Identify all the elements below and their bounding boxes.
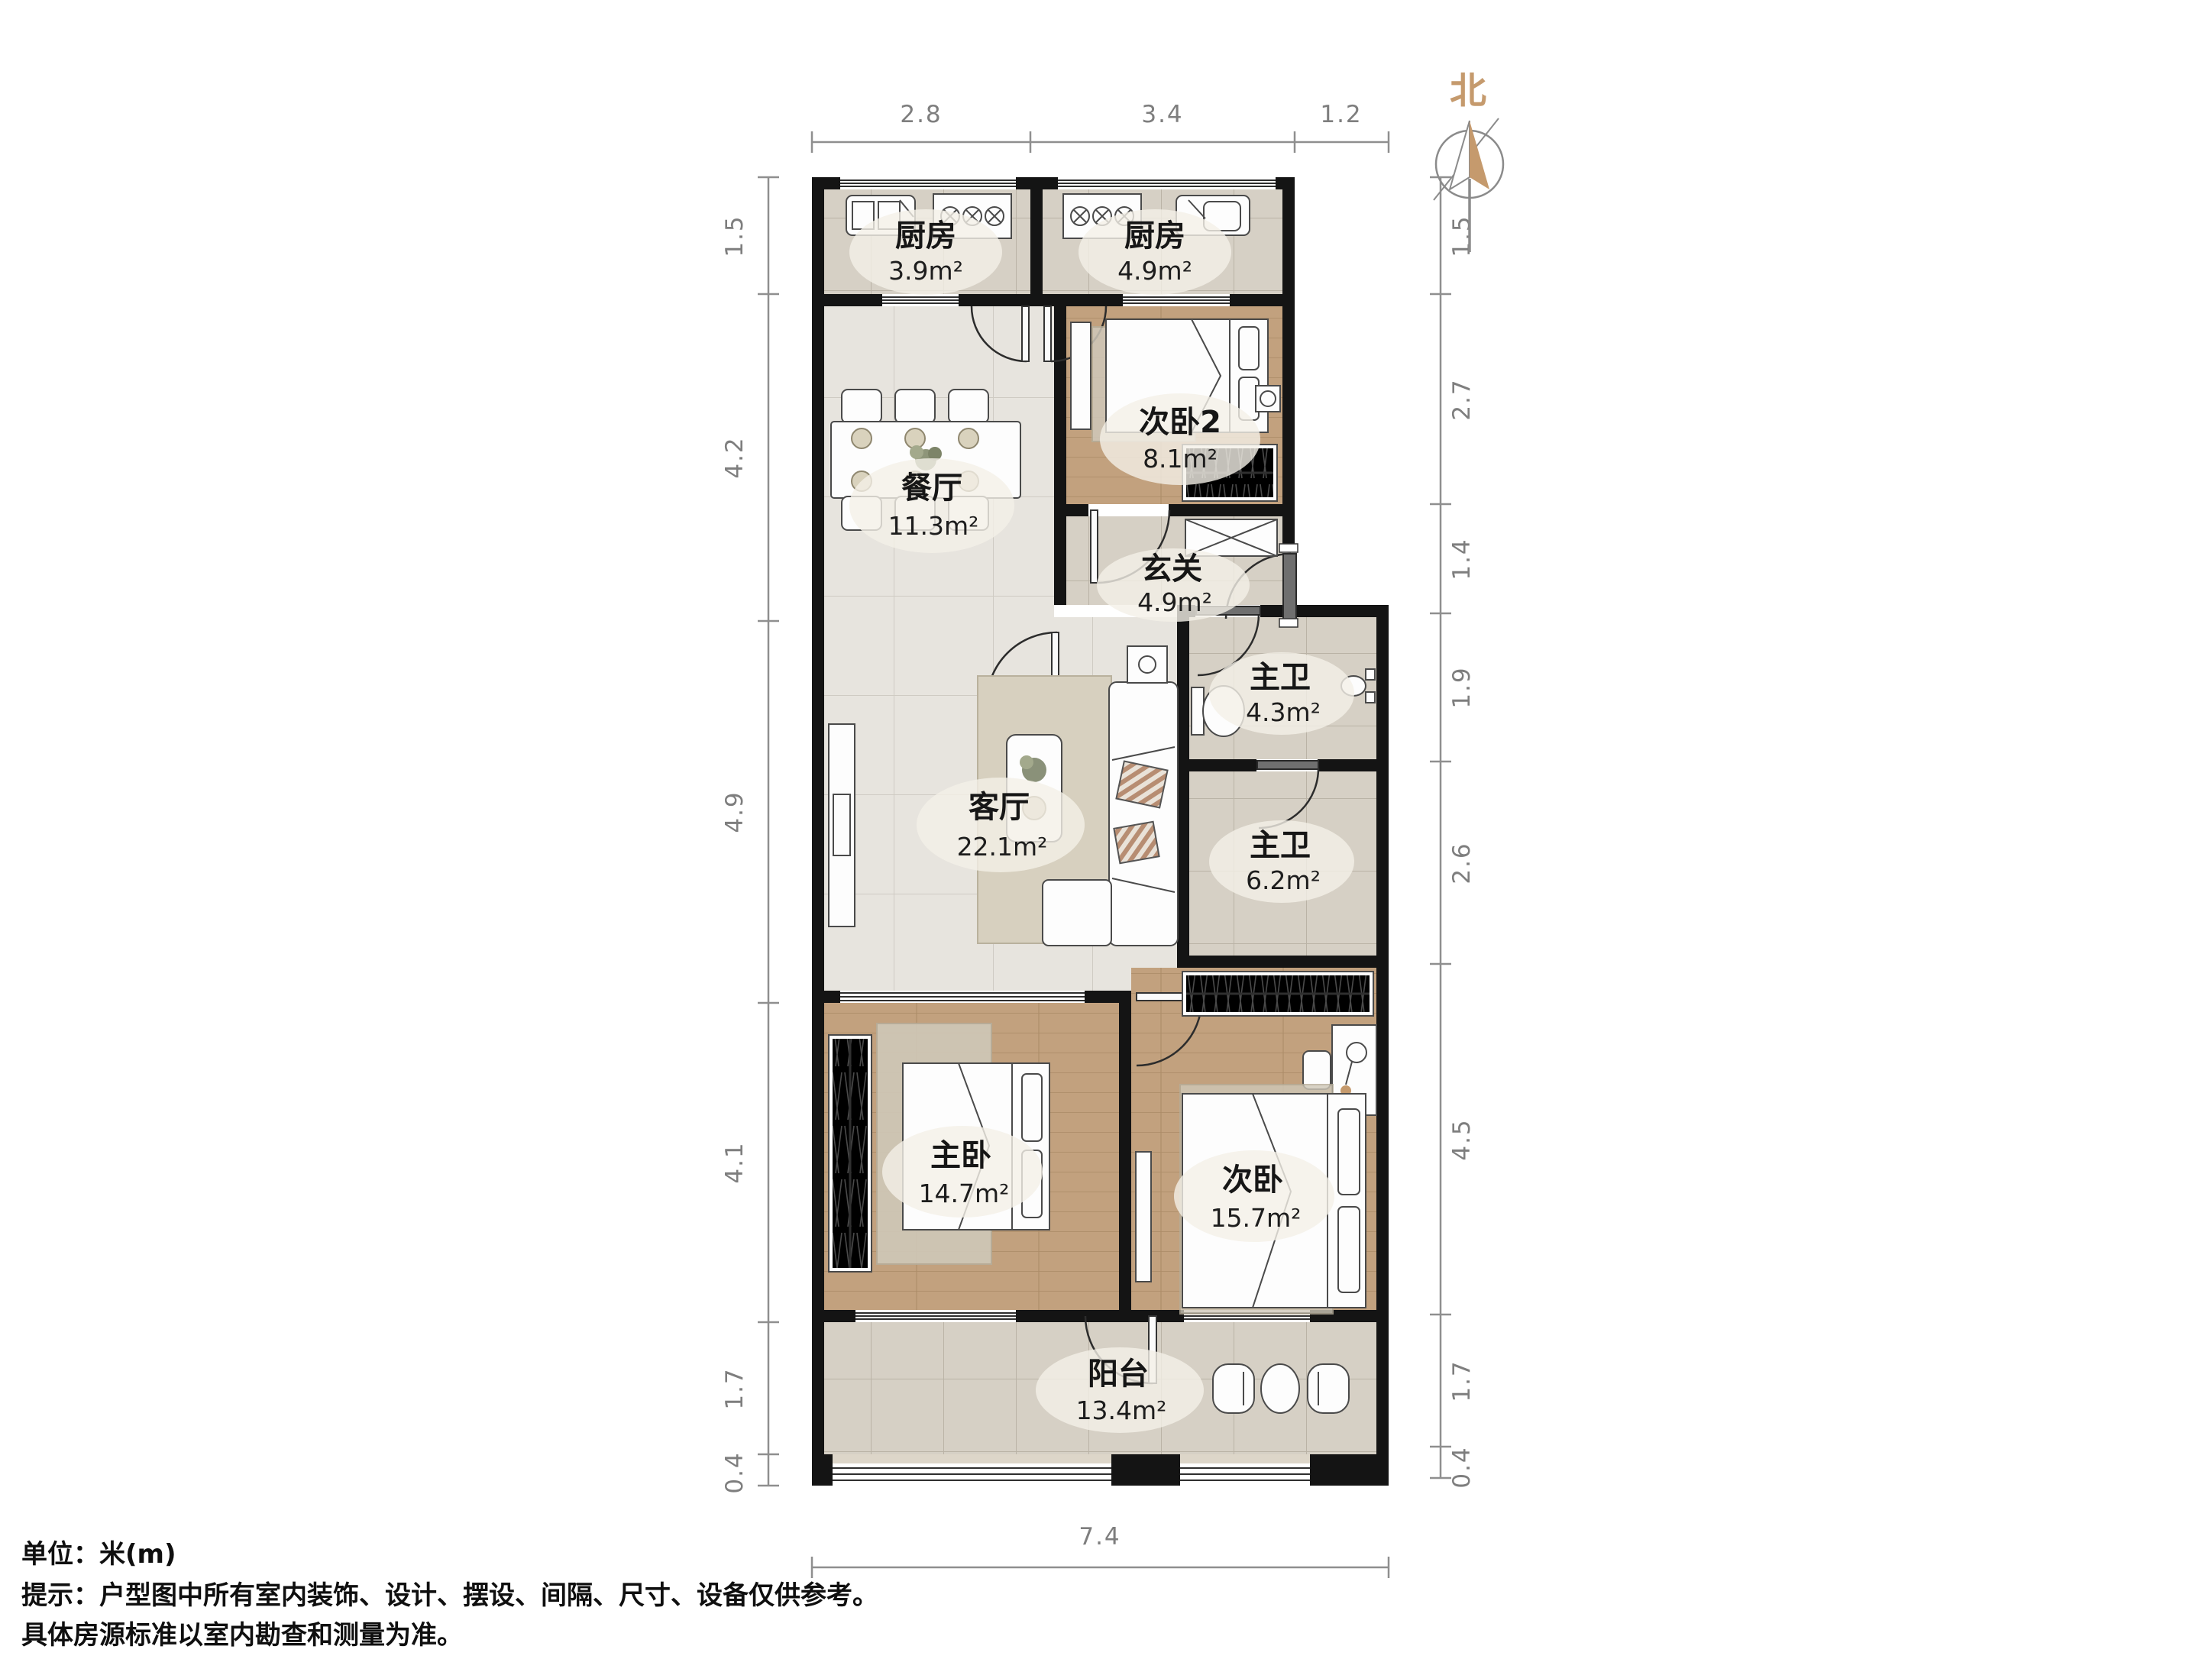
room-label-bath-1: 主卫 [1250, 660, 1311, 695]
dim-right-7: 1.7 [1448, 1360, 1476, 1402]
kitchen-1-window [840, 177, 1016, 189]
room-area-bath-2: 6.2m² [1246, 865, 1321, 895]
north-label: 北 [1450, 70, 1486, 112]
dim-top-2: 3.4 [1141, 101, 1183, 128]
tv-cabinet [829, 724, 855, 927]
master-bedroom-sliding-window [840, 991, 1085, 1003]
bedroom-2b-fan-unit [1256, 386, 1280, 412]
room-label-bedroom-2b: 次卧2 [1139, 405, 1221, 440]
unit-note: 单位：米(m) [21, 1539, 176, 1570]
room-area-kitchen-1: 3.9m² [888, 256, 963, 286]
dim-left-5: 1.7 [721, 1367, 749, 1409]
room-label-kitchen-1: 厨房 [895, 218, 956, 254]
dim-right-1: 1.5 [1448, 215, 1476, 257]
dim-right-6: 4.5 [1448, 1118, 1476, 1160]
second-tv-panel [1136, 1152, 1151, 1282]
dim-right-5: 2.6 [1448, 842, 1476, 884]
disclaimer-line-2: 具体房源标准以室内勘查和测量为准。 [21, 1620, 463, 1651]
dim-left-1: 1.5 [721, 215, 749, 257]
master-balcony-window [855, 1310, 1016, 1322]
room-label-entry: 玄关 [1141, 551, 1202, 587]
dim-right-3: 1.4 [1448, 538, 1476, 580]
side-table-flower [1127, 646, 1167, 683]
room-label-dining: 餐厅 [901, 471, 962, 506]
room-area-bedroom-2b: 8.1m² [1143, 444, 1218, 474]
footnotes: 单位：米(m) 提示：户型图中所有室内装饰、设计、摆设、间隔、尺寸、设备仅供参考… [21, 1539, 878, 1651]
room-area-kitchen-2: 4.9m² [1117, 256, 1192, 286]
disclaimer-line-1: 提示：户型图中所有室内装饰、设计、摆设、间隔、尺寸、设备仅供参考。 [21, 1580, 878, 1611]
dim-right-8: 0.4 [1448, 1446, 1476, 1488]
kitchen-2-passthrough-window [1123, 294, 1230, 306]
dim-right-4: 1.9 [1448, 666, 1476, 708]
balcony-window-right [1180, 1454, 1310, 1486]
dim-right-2: 2.7 [1448, 378, 1476, 420]
room-area-master: 14.7m² [919, 1179, 1010, 1208]
balcony-chairs [1213, 1364, 1349, 1413]
compass-needle-outline [1450, 121, 1470, 189]
balcony-window-left [833, 1454, 1111, 1486]
dim-left-2: 4.2 [721, 436, 749, 478]
second-wardrobe [1182, 972, 1373, 1016]
floor-plan-canvas: 厨房 3.9m² 厨房 4.9m² 次卧2 8.1m² 餐厅 11.3m² 玄关… [0, 0, 2212, 1659]
room-area-second: 15.7m² [1211, 1203, 1302, 1233]
bedroom-2b-panel [1071, 322, 1091, 429]
floor-plan-page: 厨房 3.9m² 厨房 4.9m² 次卧2 8.1m² 餐厅 11.3m² 玄关… [0, 0, 2212, 1659]
room-area-entry: 4.9m² [1137, 587, 1212, 617]
entry-shoe-cabinet [1185, 519, 1277, 556]
room-label-second: 次卧 [1222, 1163, 1283, 1198]
dim-left-3: 4.9 [721, 791, 749, 833]
dim-left-4: 4.1 [721, 1141, 749, 1183]
room-area-living: 22.1m² [957, 832, 1048, 862]
room-label-master: 主卧 [930, 1138, 991, 1173]
room-label-bath-2: 主卫 [1250, 828, 1311, 863]
master-wardrobe [829, 1035, 872, 1272]
room-label-balcony: 阳台 [1088, 1357, 1149, 1392]
dim-top-1: 2.8 [900, 101, 942, 128]
kitchen-1-passthrough-window [882, 294, 959, 306]
room-label-living: 客厅 [969, 790, 1030, 825]
dim-bottom-1: 7.4 [1079, 1523, 1121, 1551]
kitchen-2-window [1058, 177, 1276, 189]
room-area-balcony: 13.4m² [1076, 1395, 1167, 1425]
dim-top-3: 1.2 [1320, 101, 1362, 128]
room-area-dining: 11.3m² [888, 511, 979, 541]
dim-left-6: 0.4 [721, 1451, 749, 1493]
room-area-bath-1: 4.3m² [1246, 697, 1321, 727]
north-compass: 北 [1434, 70, 1503, 252]
room-label-kitchen-2: 厨房 [1124, 218, 1185, 254]
